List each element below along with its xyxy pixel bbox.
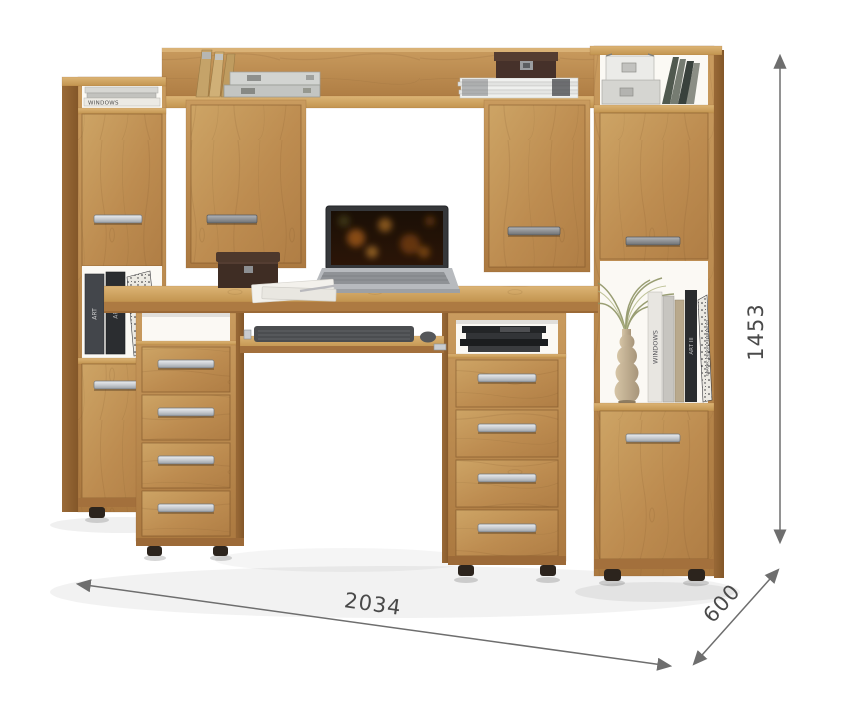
door-handle bbox=[207, 215, 257, 225]
tower-foot bbox=[89, 507, 105, 518]
pedestal-foot bbox=[147, 546, 162, 556]
white-boxes-stack bbox=[602, 54, 660, 104]
drawer bbox=[456, 360, 558, 407]
drawer bbox=[456, 410, 558, 457]
drawer-handle bbox=[478, 424, 536, 432]
scene-canvas: WINDOWS ART ART bbox=[0, 0, 850, 720]
right-shelf-books: WINDOWS ART III GRAPHIC DESIGN REFERENCE… bbox=[648, 290, 712, 402]
right-tower-upper-door bbox=[600, 113, 708, 259]
left-drawer-pedestal bbox=[136, 313, 244, 561]
left-pedestal-niche bbox=[142, 313, 230, 341]
laptop bbox=[312, 206, 460, 293]
door-handle bbox=[94, 381, 138, 391]
keyboard bbox=[254, 326, 414, 342]
drawer-handle bbox=[478, 474, 536, 482]
door-handle bbox=[626, 434, 680, 444]
dimension-height: 1453 bbox=[744, 56, 780, 542]
drawer-handle bbox=[158, 456, 214, 464]
pedestal-foot bbox=[540, 565, 556, 576]
horizontal-books-stack: WINDOWS bbox=[84, 87, 160, 107]
pedestal-foot bbox=[458, 565, 474, 576]
right-upper-cabinet bbox=[484, 100, 590, 272]
book-spine-art-iii-label: ART III bbox=[689, 337, 695, 355]
brown-leather-box bbox=[216, 252, 280, 288]
drawer-handle bbox=[158, 360, 214, 368]
tower-foot bbox=[688, 569, 705, 581]
left-upper-cabinet bbox=[186, 100, 306, 268]
book-spine-windows-label: WINDOWS bbox=[88, 101, 119, 107]
drawer bbox=[142, 347, 230, 392]
drawer-handle bbox=[158, 408, 214, 416]
door-handle bbox=[94, 215, 142, 225]
furniture-product-image: WINDOWS ART ART bbox=[0, 0, 850, 720]
drawer-handle bbox=[478, 374, 536, 382]
drawer bbox=[142, 491, 230, 536]
drawer bbox=[142, 395, 230, 440]
book-spine-graphic-design-label: GRAPHIC DESIGN REFERENCED bbox=[706, 320, 710, 377]
tower-foot bbox=[604, 569, 621, 581]
computer-desk bbox=[104, 286, 598, 583]
gray-storage-cases bbox=[224, 72, 320, 97]
left-tower-top-board bbox=[62, 77, 166, 86]
pedestal-foot bbox=[213, 546, 228, 556]
door-handle bbox=[626, 237, 680, 247]
right-bookcase-tower: WINDOWS ART III GRAPHIC DESIGN REFERENCE… bbox=[590, 46, 724, 586]
keyboard-tray bbox=[240, 326, 446, 353]
drawer bbox=[142, 443, 230, 488]
drawer bbox=[456, 510, 558, 556]
brown-storage-box bbox=[494, 52, 558, 78]
book-spine-art-label: ART bbox=[92, 308, 99, 320]
left-tower-upper-door bbox=[82, 114, 162, 266]
dimension-height-label: 1453 bbox=[744, 303, 768, 360]
white-magazine-stack bbox=[458, 78, 578, 98]
right-drawer-pedestal bbox=[442, 313, 566, 583]
drawer-handle bbox=[478, 524, 536, 532]
left-upper-cabinet-door bbox=[191, 105, 301, 263]
drawer-handle bbox=[158, 504, 214, 512]
left-tower-side-panel bbox=[62, 80, 78, 512]
right-upper-cabinet-door bbox=[489, 105, 585, 267]
tray-slide-bracket bbox=[434, 344, 446, 350]
book-spine-windows-label-2: WINDOWS bbox=[652, 330, 660, 364]
drawer bbox=[456, 460, 558, 507]
door-handle bbox=[508, 227, 560, 237]
tray-slide-bracket bbox=[244, 330, 251, 339]
computer-mouse bbox=[420, 332, 436, 343]
right-tower-side-panel bbox=[714, 50, 724, 578]
right-tower-top-board bbox=[590, 46, 722, 55]
dark-books-stack bbox=[460, 326, 548, 352]
right-tower-lower-door bbox=[600, 411, 708, 559]
laptop-keyboard bbox=[318, 272, 450, 284]
